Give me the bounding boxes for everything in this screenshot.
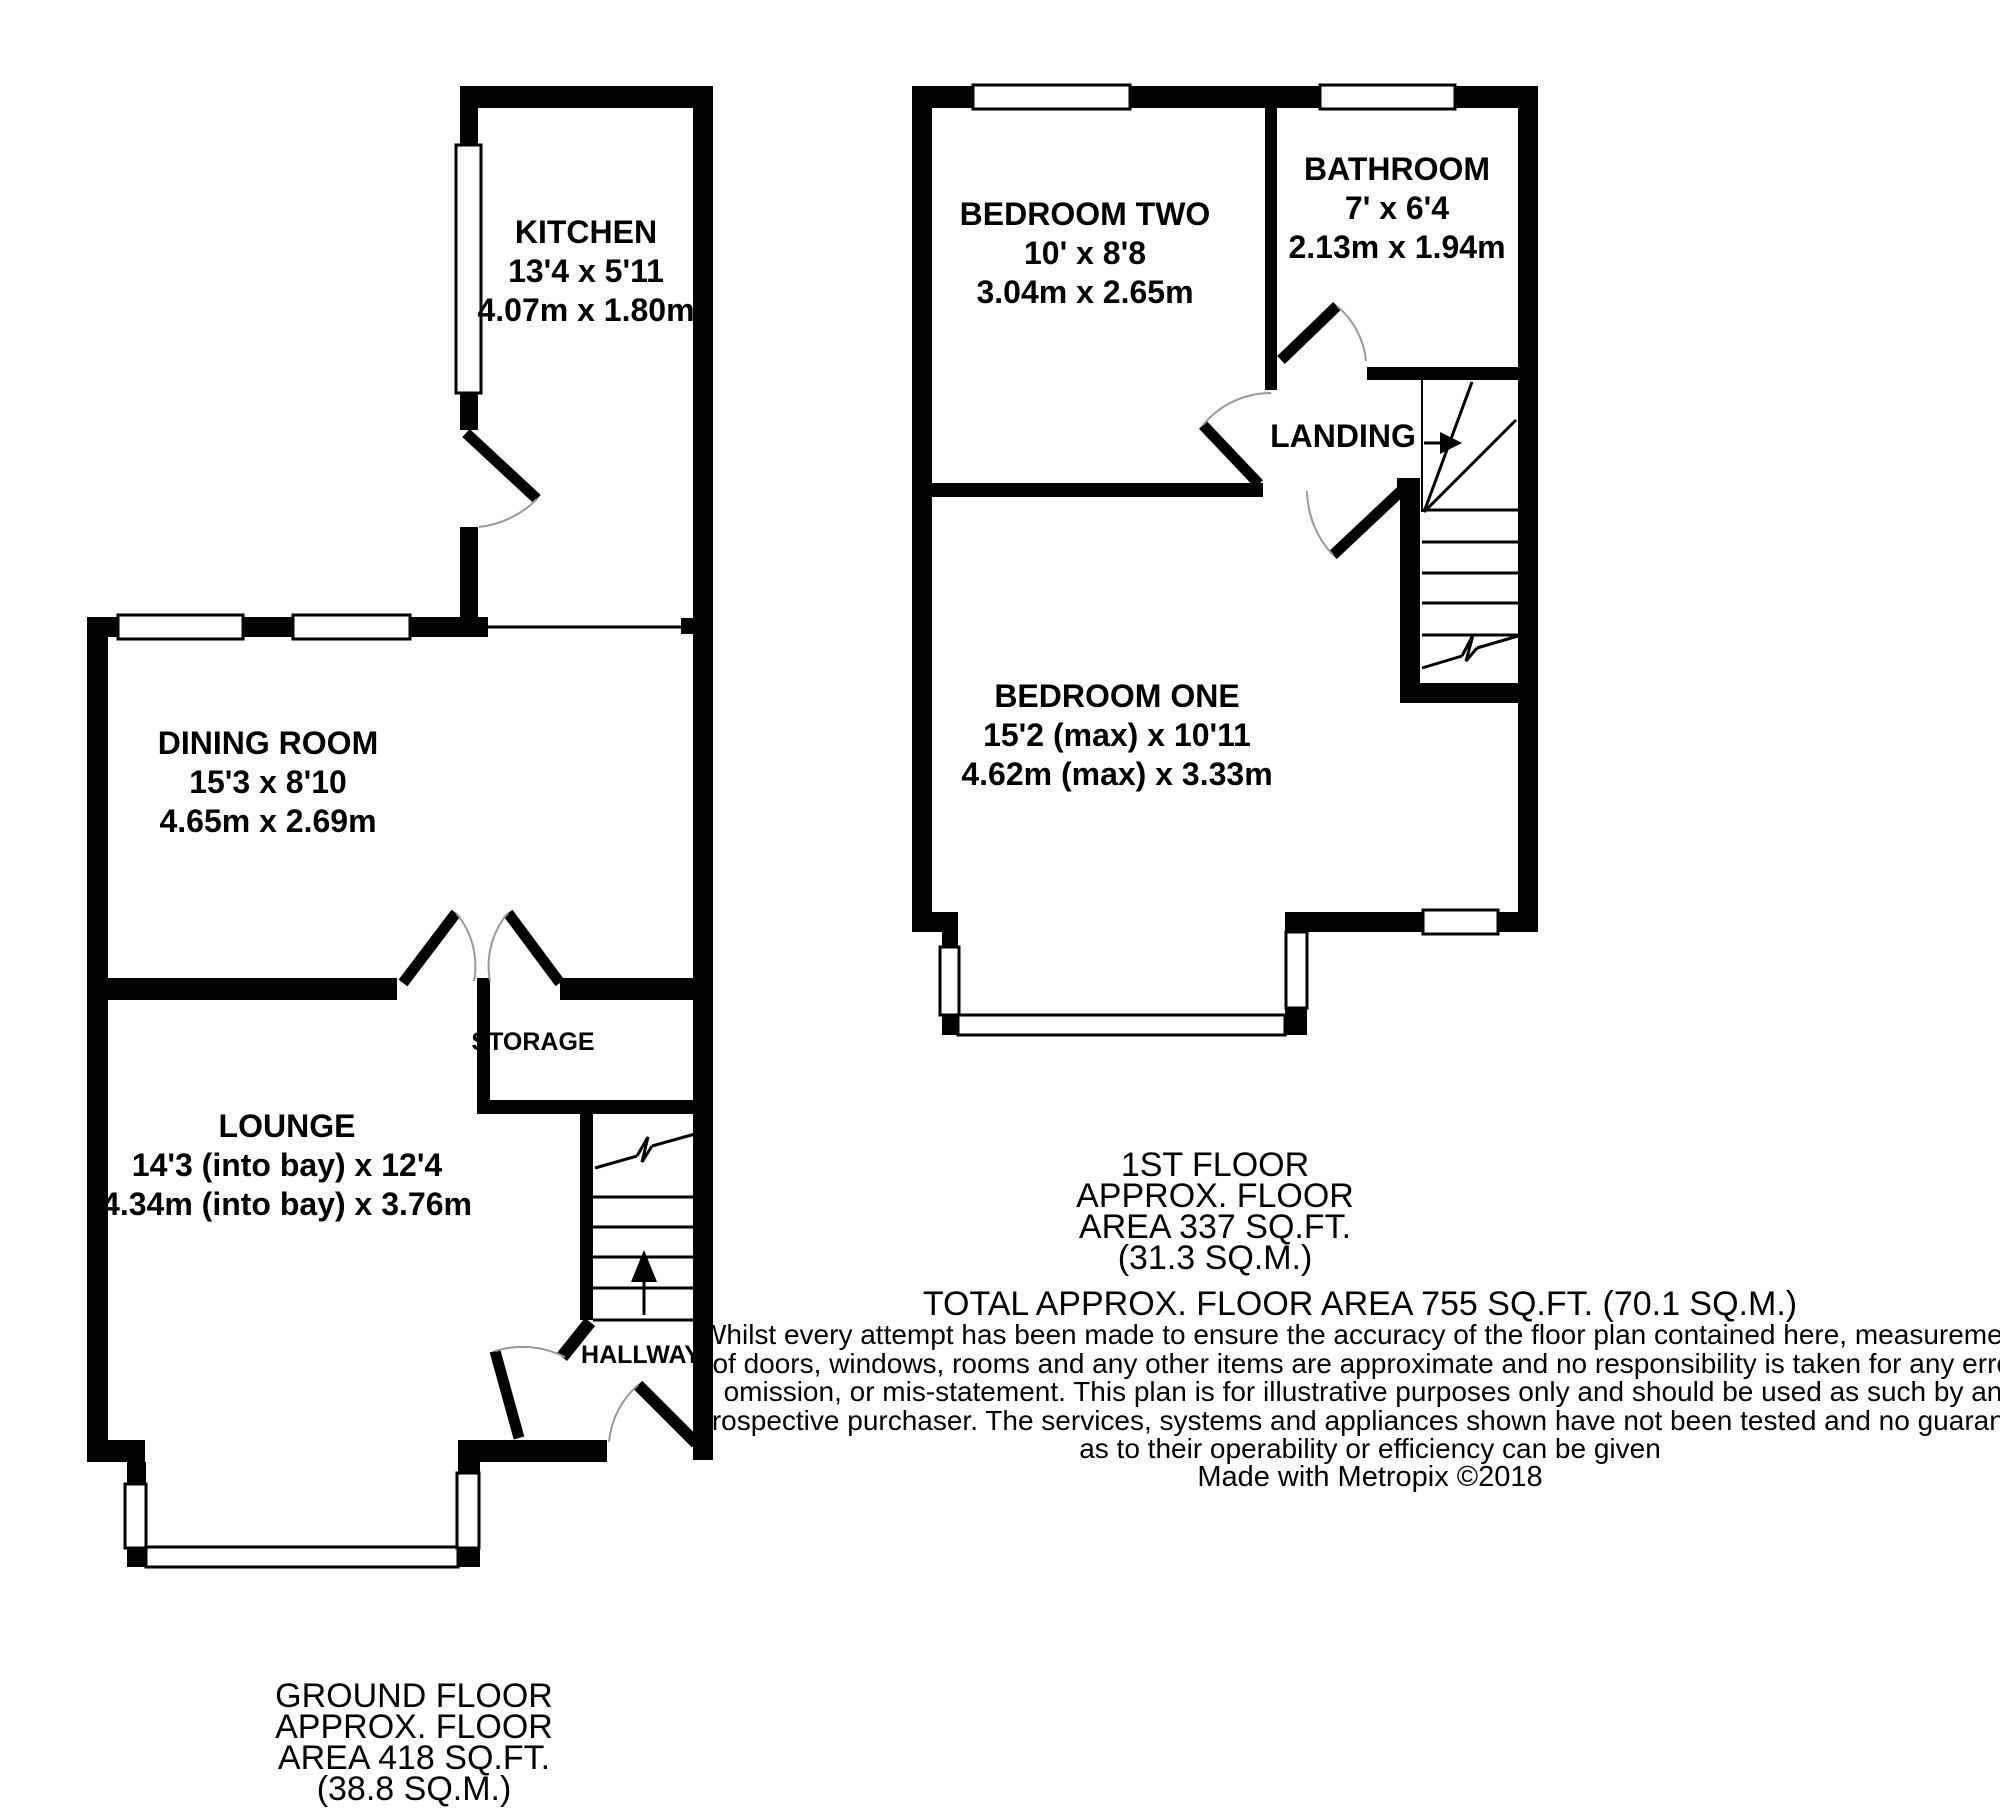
stair-break-line (595, 1156, 637, 1168)
bedroom-two-name: BEDROOM TWO (960, 195, 1211, 234)
first-floor-caption-line: (31.3 SQ.M.) (1076, 1243, 1354, 1274)
bay-window-right (457, 1473, 479, 1548)
disclaimer-line: as to their operability or efficiency ca… (696, 1435, 2000, 1464)
metropix-credit: Made with Metropix ©2018 (1197, 1461, 1542, 1494)
bedroom-two-door-leaf (1203, 425, 1259, 484)
bathroom-name: BATHROOM (1288, 150, 1505, 189)
bedroom-one-dims-metric: 4.62m (max) x 3.33m (961, 755, 1272, 794)
front-door-leaf (638, 1385, 696, 1443)
lounge-name: LOUNGE (102, 1107, 472, 1146)
bathroom-label: BATHROOM 7' x 6'4 2.13m x 1.94m (1288, 150, 1505, 267)
disclaimer-text: Whilst every attempt has been made to en… (696, 1321, 2000, 1464)
kitchen-door-arc (479, 499, 537, 527)
lounge-hallway-door-leaf (495, 1351, 519, 1438)
bathroom-dims-imperial: 7' x 6'4 (1288, 189, 1505, 228)
hallway-name: HALLWAY (581, 1340, 701, 1370)
first-floor-stairs-direction-arrow-icon (1424, 432, 1462, 454)
dining-window-left (118, 615, 243, 639)
bedroom-one-door-arc (1307, 491, 1333, 555)
dining-window-right (293, 615, 410, 639)
kitchen-dims-imperial: 13'4 x 5'11 (477, 252, 694, 291)
bathroom-door-leaf (1281, 306, 1337, 360)
ground-floor-stairs (593, 1134, 695, 1320)
bedroom-one-label: BEDROOM ONE 15'2 (max) x 10'11 4.62m (ma… (961, 677, 1272, 794)
hallway-label: HALLWAY (581, 1340, 701, 1370)
disclaimer-line: Whilst every attempt has been made to en… (696, 1321, 2000, 1350)
bedroom-one-side-window (1423, 910, 1498, 934)
lounge-dims-metric: 4.34m (into bay) x 3.76m (102, 1185, 472, 1224)
dining-room-name: DINING ROOM (158, 724, 378, 763)
dining-room-dims-metric: 4.65m x 2.69m (158, 802, 378, 841)
lounge-dims-imperial: 14'3 (into bay) x 12'4 (102, 1146, 472, 1185)
ground-floor-windows (118, 145, 481, 1567)
stair-winder-line (1424, 420, 1516, 512)
stair-break-line (1477, 636, 1518, 648)
bedroom-one-dims-imperial: 15'2 (max) x 10'11 (961, 716, 1272, 755)
bedroom-one-bay-window-front (958, 1015, 1285, 1035)
kitchen-door-leaf (466, 433, 537, 499)
bedroom-two-dims-metric: 3.04m x 2.65m (960, 273, 1211, 312)
disclaimer-line: omission, or mis-statement. This plan is… (696, 1378, 2000, 1407)
lounge-dining-door-leaf (403, 913, 456, 983)
storage-label: STORAGE (471, 1027, 594, 1057)
storage-door-arc (489, 913, 508, 981)
storage-name: STORAGE (471, 1027, 594, 1057)
ground-stairs-up-arrow-icon (631, 1250, 657, 1315)
disclaimer-line: of doors, windows, rooms and any other i… (696, 1350, 2000, 1379)
kitchen-name: KITCHEN (477, 213, 694, 252)
front-door-arc (609, 1385, 638, 1442)
stair-break-zigzag (1462, 635, 1477, 661)
floorplan-page: KITCHEN 13'4 x 5'11 4.07m x 1.80m DINING… (0, 0, 2000, 1811)
stair-break-zigzag (637, 1137, 652, 1162)
bedroom-two-label: BEDROOM TWO 10' x 8'8 3.04m x 2.65m (960, 195, 1211, 312)
ground-floor-caption: GROUND FLOOR APPROX. FLOOR AREA 418 SQ.F… (275, 1681, 553, 1805)
dining-room-label: DINING ROOM 15'3 x 8'10 4.65m x 2.69m (158, 724, 378, 841)
kitchen-dims-metric: 4.07m x 1.80m (477, 291, 694, 330)
lounge-hallway-door-arc (495, 1347, 565, 1357)
bedroom-one-bay-window-left (940, 947, 959, 1015)
bathroom-dims-metric: 2.13m x 1.94m (1288, 228, 1505, 267)
bay-window-front (146, 1547, 458, 1567)
bathroom-door-arc (1337, 306, 1366, 361)
stair-break-line (1422, 656, 1462, 668)
bedroom-one-name: BEDROOM ONE (961, 677, 1272, 716)
stair-break-line (652, 1134, 695, 1146)
storage-door-leaf (508, 913, 560, 983)
first-floor-stairs (1422, 380, 1518, 668)
landing-label: LANDING (1270, 417, 1416, 456)
ground-floor-doors (403, 433, 696, 1443)
first-floor-caption: 1ST FLOOR APPROX. FLOOR AREA 337 SQ.FT. … (1076, 1150, 1354, 1274)
bay-window-left (125, 1484, 146, 1548)
bedroom-two-door-arc (1203, 393, 1271, 425)
lounge-dining-door-arc (456, 913, 475, 981)
disclaimer-line: prospective purchaser. The services, sys… (696, 1407, 2000, 1436)
dining-room-dims-imperial: 15'3 x 8'10 (158, 763, 378, 802)
bedroom-two-window (973, 85, 1130, 109)
bathroom-window (1320, 85, 1455, 109)
ground-floor-caption-line: (38.8 SQ.M.) (275, 1774, 553, 1805)
bedroom-two-dims-imperial: 10' x 8'8 (960, 234, 1211, 273)
bedroom-one-door-leaf (1333, 491, 1401, 555)
bedroom-one-bay-window-right (1286, 932, 1307, 1008)
lounge-label: LOUNGE 14'3 (into bay) x 12'4 4.34m (int… (102, 1107, 472, 1224)
kitchen-label: KITCHEN 13'4 x 5'11 4.07m x 1.80m (477, 213, 694, 330)
landing-name: LANDING (1270, 417, 1416, 456)
